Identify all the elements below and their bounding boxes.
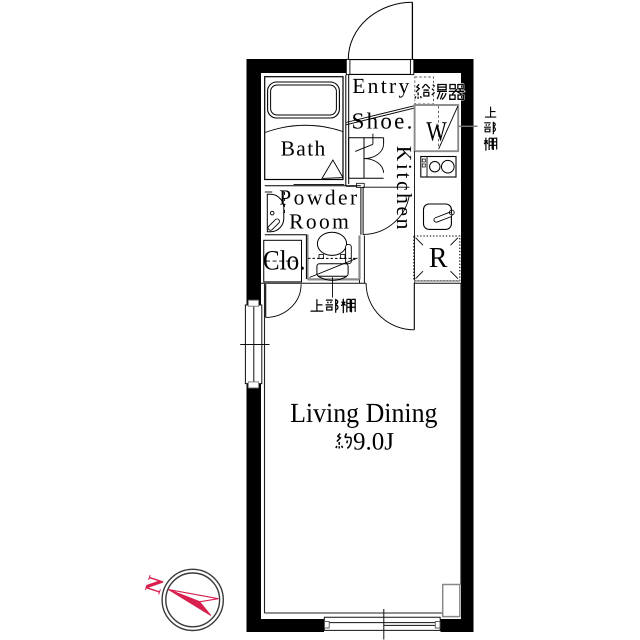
svg-text:Clo.: Clo. xyxy=(263,246,306,277)
svg-text:Powder: Powder xyxy=(279,186,357,210)
svg-text:Living Dining: Living Dining xyxy=(290,397,438,428)
svg-text:N: N xyxy=(140,573,169,597)
svg-text:Shoe.: Shoe. xyxy=(352,108,413,133)
svg-text:Kitchen: Kitchen xyxy=(392,146,416,230)
svg-text:Bath: Bath xyxy=(281,136,326,160)
svg-text:W: W xyxy=(426,117,447,148)
svg-text:Room: Room xyxy=(289,210,349,234)
svg-text:R: R xyxy=(429,242,448,274)
svg-text:Entry: Entry xyxy=(352,74,409,98)
svg-text:9.0J: 9.0J xyxy=(353,428,394,455)
